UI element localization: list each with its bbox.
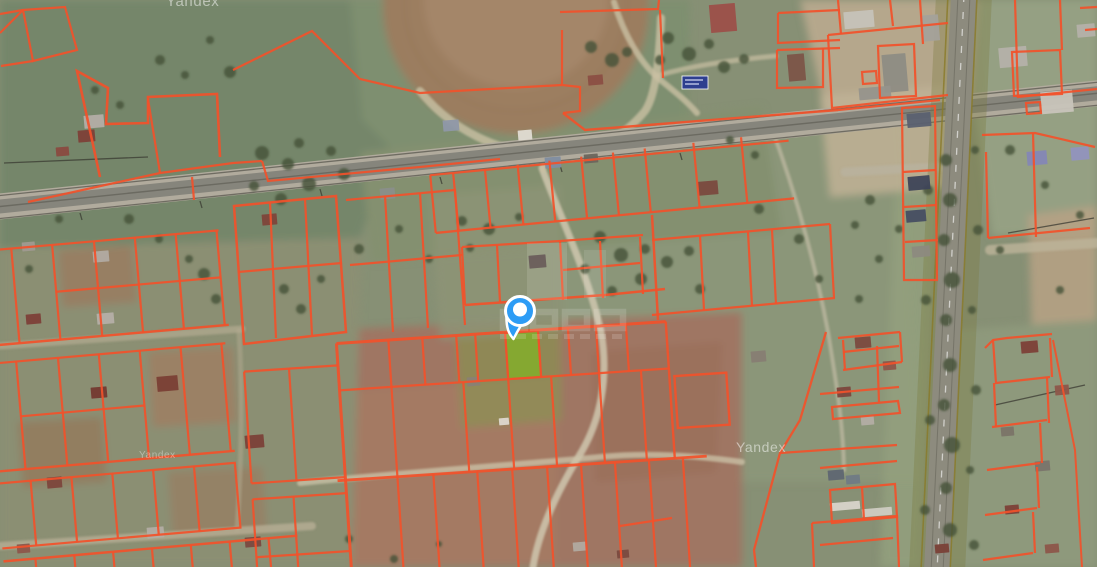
satellite-cadastral-map	[0, 0, 1097, 567]
map-viewport[interactable]: Yandex Yandex Yandex	[0, 0, 1097, 567]
road-sign	[682, 76, 708, 89]
location-pin-icon[interactable]	[495, 284, 545, 342]
pin-hole	[513, 303, 527, 317]
